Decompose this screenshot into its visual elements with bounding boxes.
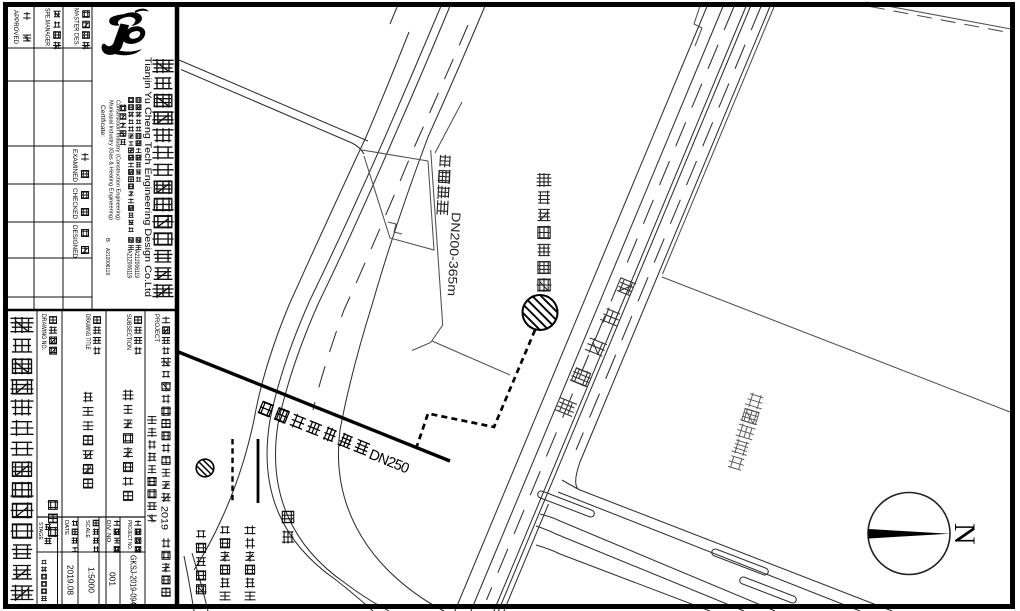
svg-text:B: B [104,238,110,242]
svg-text:A212006119: A212006119 [104,248,110,275]
svg-text:001: 001 [108,572,118,586]
svg-text:A212006119: A212006119 [126,250,132,279]
svg-text:SPE.MANAGER: SPE.MANAGER [44,8,50,47]
svg-text:MASTER DES.: MASTER DES. [73,8,79,46]
svg-text:Municipal Industry (Gas & Heat: Municipal Industry (Gas & Heating Engine… [108,100,114,220]
svg-text:Tianjin Yu Cheng Tech Engineer: Tianjin Yu Cheng Tech Engineering Design… [142,57,153,297]
svg-text:DN200-365m: DN200-365m [445,212,463,297]
svg-text:DIV. NO.: DIV. NO. [105,520,111,544]
svg-text:GKSJ-2019-094: GKSJ-2019-094 [129,555,139,605]
svg-text:DRAWING TITLE: DRAWING TITLE [84,314,90,350]
svg-text:DN250: DN250 [367,447,412,477]
svg-text:SUBSECTION: SUBSECTION [125,314,131,350]
svg-text:EXAMINED: EXAMINED [71,149,78,183]
svg-text:A212006119: A212006119 [133,250,139,279]
svg-text:PROJECT NO.: PROJECT NO. [126,520,132,550]
svg-text:DATE: DATE [63,520,69,536]
svg-text:PROJECT: PROJECT [153,314,159,342]
svg-text:1:5000: 1:5000 [87,567,97,593]
svg-text:CHECKED: CHECKED [71,188,78,220]
svg-text:APPROVED: APPROVED [12,10,19,44]
svg-text:Construction Industry (Constru: Construction Industry (Construction Engi… [115,100,121,220]
svg-text:SCALE: SCALE [84,520,90,539]
svg-text:2019: 2019 [159,506,170,530]
svg-text:DRAWING NO.: DRAWING NO. [40,314,46,350]
svg-text:Certificate:: Certificate: [99,105,106,137]
svg-text:N: N [948,523,981,545]
svg-text:2019.08: 2019.08 [66,565,76,595]
svg-text:DESIGNED: DESIGNED [71,225,78,259]
svg-text:STAGE: STAGE [37,522,43,541]
